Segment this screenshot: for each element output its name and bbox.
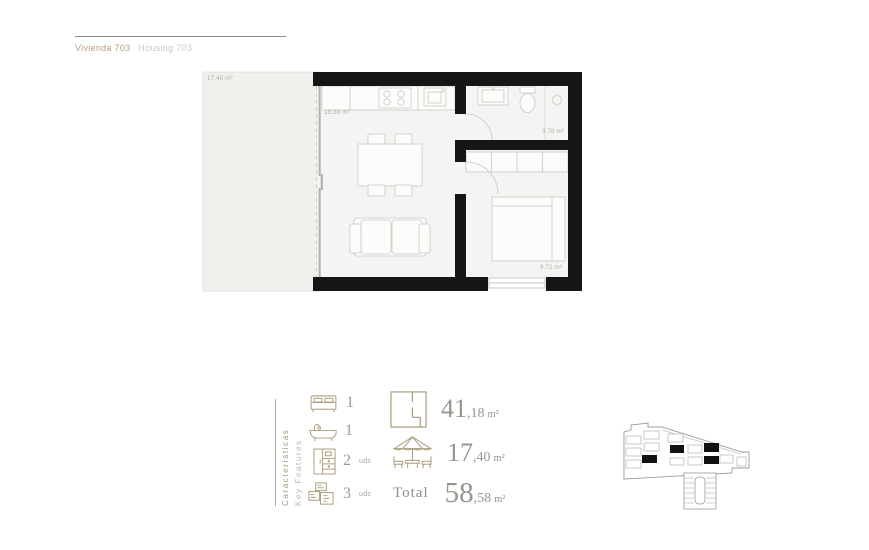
brochure-page: Vivienda 703 Housing 703	[0, 0, 869, 550]
wardrobe-count: 2	[343, 452, 351, 470]
interior-area-value: 41,18m²	[441, 396, 499, 422]
rooms-count: 3	[343, 485, 351, 503]
terrace-area-value: 17,40m²	[447, 440, 505, 466]
feature-bathrooms: 1	[308, 418, 361, 444]
stove	[379, 88, 411, 108]
feature-wardrobes: 2uds	[313, 448, 371, 474]
dining-table	[358, 144, 422, 186]
total-area-row: Total 58,58m²	[393, 474, 505, 512]
page-title: Vivienda 703 Housing 703	[75, 43, 192, 53]
bathroom-area-label: 3.78 m²	[542, 128, 565, 135]
total-label: Total	[393, 485, 429, 502]
wardrobe-icon	[313, 448, 336, 475]
unit-name-es: Vivienda 703	[75, 43, 130, 53]
bedroom-window	[489, 278, 545, 288]
sofa	[350, 218, 430, 256]
dining-chair	[368, 134, 385, 145]
dining-chair	[368, 185, 385, 196]
bathroom-count: 1	[345, 422, 353, 440]
keyplan-drawing	[622, 417, 752, 513]
bathroom-sink	[478, 87, 508, 105]
features-title-en: Key Features	[294, 399, 304, 506]
features-title-es: Características	[281, 399, 291, 506]
features-section-title: Características Key Features	[281, 399, 303, 506]
floorplan-icon	[389, 390, 428, 429]
rooms-icon	[307, 481, 336, 507]
floorplan-drawing: 17.40 m² 18.36 m² 3.78 m² 9.72 m²	[198, 66, 586, 294]
kitchen-sink	[424, 88, 446, 106]
wardrobe	[466, 152, 568, 172]
feature-bedrooms: 1	[308, 390, 362, 416]
terrace-area-row: 17,40m²	[391, 432, 505, 474]
stair-tower	[684, 473, 716, 509]
feature-rooms: 3uds	[307, 481, 371, 507]
bed-icon	[308, 393, 339, 414]
bedroom-area-label: 9.72 m²	[540, 264, 563, 271]
features-divider	[275, 399, 276, 506]
terrace-area-label: 17.40 m²	[207, 75, 233, 82]
toilet	[520, 87, 535, 113]
bathtub-icon	[308, 421, 338, 442]
living-area-label: 18.36 m²	[324, 109, 350, 116]
pergola-icon	[391, 435, 434, 472]
dining-chair	[395, 134, 412, 145]
dining-chair	[395, 185, 412, 196]
terrace-region	[203, 72, 319, 291]
total-area-value: 58,58m²	[445, 479, 506, 508]
unit-name-en: Housing 703	[138, 43, 192, 53]
bedroom-count: 1	[346, 394, 354, 412]
interior-area-row: 41,18m²	[389, 388, 499, 430]
header-divider	[75, 36, 286, 37]
bed	[492, 197, 565, 261]
